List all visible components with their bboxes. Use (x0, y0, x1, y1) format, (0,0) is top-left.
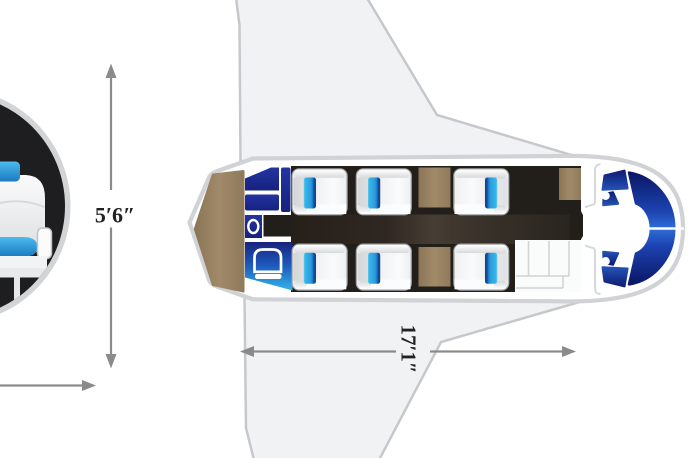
svg-text:17′1″: 17′1″ (397, 324, 421, 373)
svg-text:5′6″: 5′6″ (95, 203, 135, 228)
